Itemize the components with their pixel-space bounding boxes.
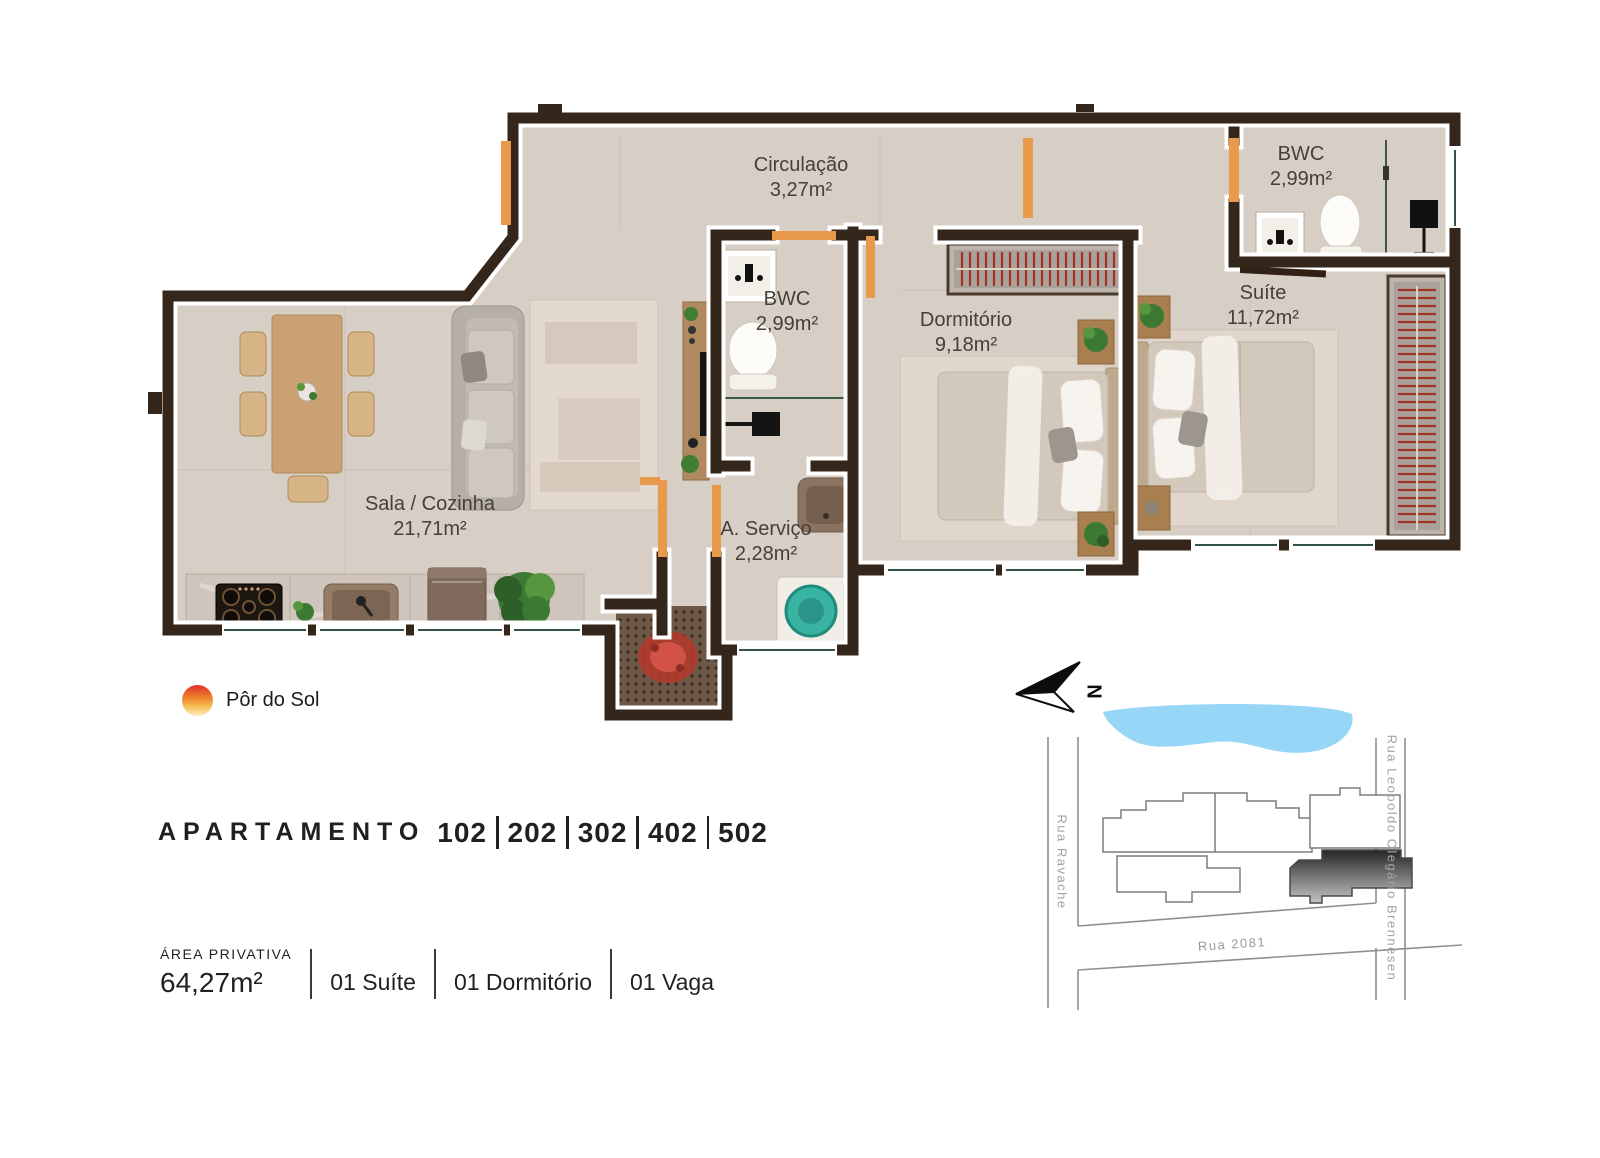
room-name: BWC	[756, 287, 818, 312]
room-area: 9,18m²	[920, 333, 1012, 358]
detail-separator	[310, 949, 312, 999]
sunset-legend: Pôr do Sol	[182, 685, 319, 716]
room-label-suite: Suíte 11,72m²	[1227, 281, 1299, 331]
room-area: 2,99m²	[1270, 167, 1332, 192]
street-label-leopoldo: Rua Leopoldo Olegário Brennesen	[1385, 735, 1400, 982]
sofa	[452, 306, 524, 510]
unit-number: 302	[578, 817, 628, 849]
tv-console	[681, 302, 709, 480]
floor-plan-page: Circulação 3,27m² BWC 2,99m² Suíte 11,72…	[0, 0, 1600, 1158]
room-area: 21,71m²	[365, 517, 495, 542]
detail-separator	[610, 949, 612, 999]
north-label: N	[1082, 684, 1105, 698]
room-area: 2,28m²	[720, 542, 811, 567]
private-area-label: ÁREA PRIVATIVA	[160, 946, 292, 962]
bedroom-furniture	[938, 244, 1128, 556]
room-name: A. Serviço	[720, 517, 811, 542]
room-name: Dormitório	[920, 308, 1012, 333]
unit-number: 502	[718, 817, 768, 849]
room-name: Sala / Cozinha	[365, 492, 495, 517]
room-name: Circulação	[754, 153, 848, 178]
detail-separator	[434, 949, 436, 999]
waterfront-shape	[1103, 704, 1353, 753]
feature-suite: 01 Suíte	[330, 969, 416, 999]
unit-separator	[496, 816, 499, 849]
apartment-details-row: ÁREA PRIVATIVA 64,27m² 01 Suíte 01 Dormi…	[160, 946, 714, 999]
north-arrow-icon	[1016, 662, 1080, 712]
room-label-sala-cozinha: Sala / Cozinha 21,71m²	[365, 492, 495, 542]
building-footprints	[1103, 788, 1412, 903]
room-area: 11,72m²	[1227, 306, 1299, 331]
feature-dormitorio: 01 Dormitório	[454, 969, 592, 999]
street-label-ravache: Rua Ravache	[1055, 814, 1070, 909]
room-label-dormitorio: Dormitório 9,18m²	[920, 308, 1012, 358]
unit-separator	[636, 816, 639, 849]
feature-vaga: 01 Vaga	[630, 969, 714, 999]
room-name: Suíte	[1227, 281, 1299, 306]
private-area-value: 64,27m²	[160, 967, 292, 999]
room-label-a-servico: A. Serviço 2,28m²	[720, 517, 811, 567]
room-name: BWC	[1270, 142, 1332, 167]
unit-separator	[566, 816, 569, 849]
room-label-bwc-suite: BWC 2,99m²	[1270, 142, 1332, 192]
room-area: 2,99m²	[756, 312, 818, 337]
room-label-bwc: BWC 2,99m²	[756, 287, 818, 337]
unit-number: 102	[437, 817, 487, 849]
unit-number: 202	[508, 817, 558, 849]
room-label-circulacao: Circulação 3,27m²	[754, 153, 848, 203]
unit-number: 402	[648, 817, 698, 849]
apartment-title: APARTAMENTO	[158, 818, 425, 847]
apartment-title-row: APARTAMENTO 102 202 302 402 502	[158, 816, 768, 849]
room-area: 3,27m²	[754, 178, 848, 203]
private-area-block: ÁREA PRIVATIVA 64,27m²	[160, 946, 292, 999]
sunset-icon	[182, 685, 213, 716]
sunset-label: Pôr do Sol	[226, 689, 319, 712]
unit-separator	[707, 816, 710, 849]
